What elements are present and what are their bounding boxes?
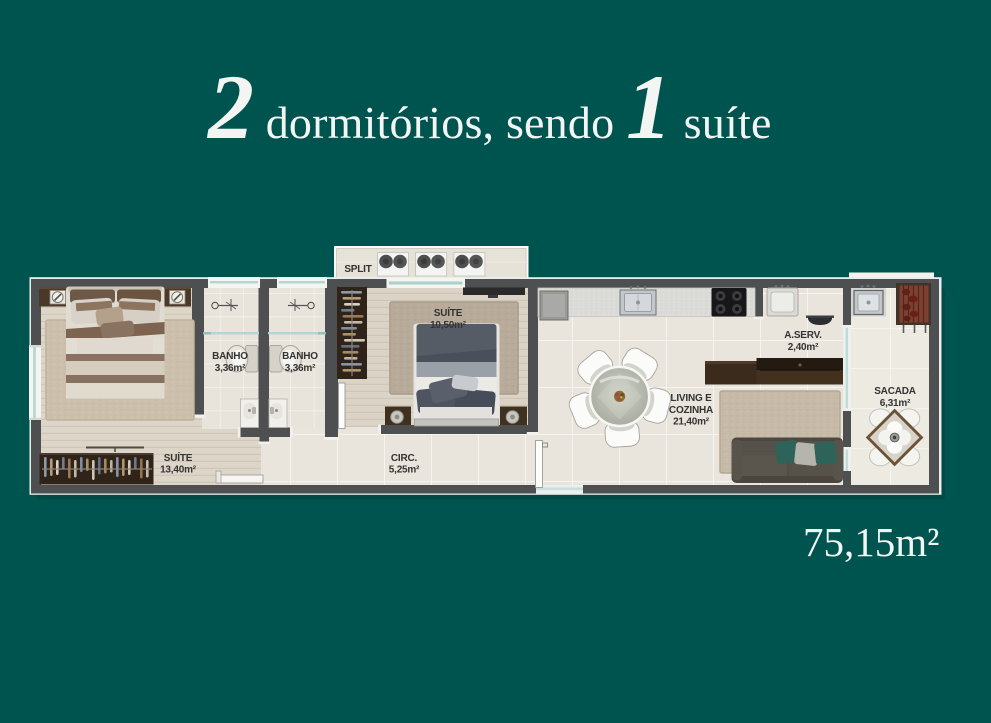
svg-text:BANHO: BANHO [282, 351, 318, 362]
svg-text:3,36m²: 3,36m² [215, 363, 246, 374]
svg-text:LIVING E: LIVING E [670, 393, 712, 404]
svg-text:SPLIT: SPLIT [344, 264, 371, 275]
svg-text:2,40m²: 2,40m² [788, 342, 819, 353]
svg-text:CIRC.: CIRC. [391, 453, 418, 464]
svg-text:5,25m²: 5,25m² [389, 465, 420, 476]
svg-text:3,36m²: 3,36m² [285, 363, 316, 374]
svg-text:SUÍTE: SUÍTE [164, 451, 193, 464]
svg-text:SUÍTE: SUÍTE [434, 306, 463, 319]
svg-text:6,31m²: 6,31m² [880, 398, 911, 409]
svg-text:A.SERV.: A.SERV. [784, 330, 822, 341]
svg-text:13,40m²: 13,40m² [160, 465, 197, 476]
svg-text:10,50m²: 10,50m² [430, 320, 467, 331]
svg-text:COZINHA: COZINHA [669, 405, 713, 416]
svg-text:SACADA: SACADA [874, 386, 916, 397]
svg-text:BANHO: BANHO [212, 351, 248, 362]
svg-text:21,40m²: 21,40m² [673, 417, 710, 428]
